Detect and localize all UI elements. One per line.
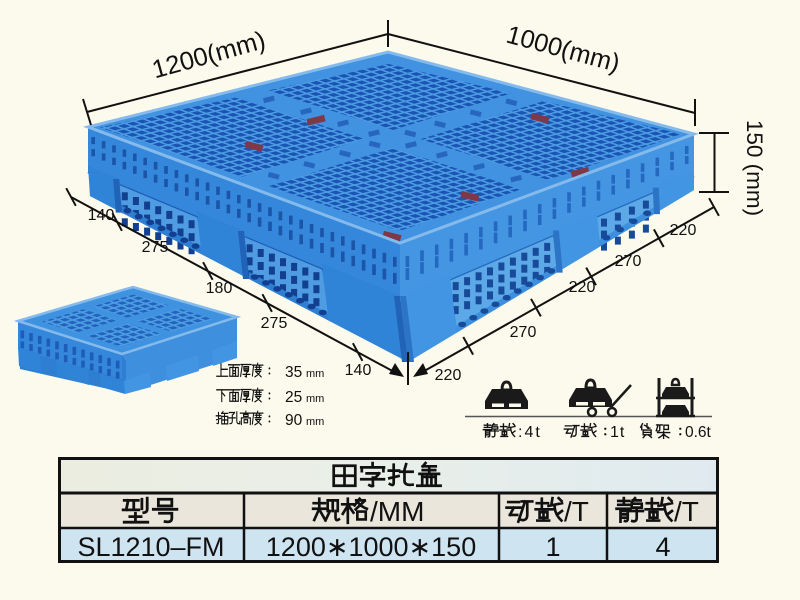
- svg-text:25: 25: [285, 389, 302, 406]
- svg-text:1t: 1t: [610, 424, 625, 441]
- svg-text:220: 220: [569, 279, 596, 296]
- svg-text:4: 4: [655, 532, 670, 562]
- svg-text:/MM: /MM: [370, 496, 424, 527]
- svg-text:1200∗1000∗150: 1200∗1000∗150: [266, 532, 476, 562]
- svg-text:/T: /T: [564, 496, 589, 527]
- svg-text:270: 270: [615, 253, 642, 270]
- svg-text:275: 275: [261, 315, 288, 332]
- svg-text:/T: /T: [674, 496, 699, 527]
- svg-text:220: 220: [670, 222, 697, 239]
- svg-text:275: 275: [142, 239, 169, 256]
- svg-text:mm: mm: [306, 393, 324, 405]
- svg-text:270: 270: [510, 324, 537, 341]
- svg-text:mm: mm: [306, 368, 324, 380]
- svg-text:180: 180: [206, 280, 233, 297]
- svg-text:140: 140: [345, 362, 372, 379]
- svg-text:35: 35: [285, 364, 302, 381]
- svg-text:90: 90: [285, 412, 303, 429]
- svg-text:220: 220: [435, 367, 462, 384]
- svg-text::4t: :4t: [518, 424, 542, 441]
- svg-text:140: 140: [88, 207, 115, 224]
- svg-text:mm: mm: [306, 416, 324, 428]
- svg-text:150 (mm): 150 (mm): [742, 120, 767, 216]
- svg-text:SL1210–FM: SL1210–FM: [77, 532, 224, 562]
- svg-text:1: 1: [545, 532, 560, 562]
- svg-text:0.6t: 0.6t: [685, 424, 712, 441]
